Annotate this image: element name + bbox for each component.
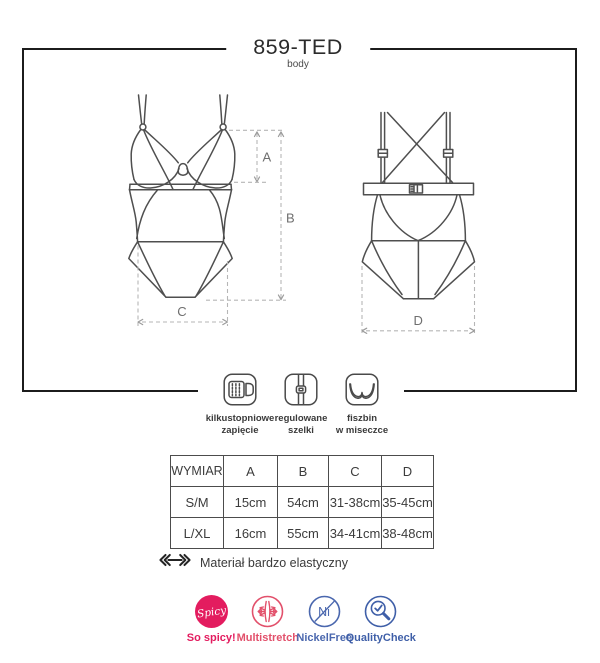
stretch-arrows-icon xyxy=(157,552,193,573)
badge-label: QualityCheck xyxy=(346,632,416,644)
back-view-drawing xyxy=(362,113,474,299)
svg-text:Ni: Ni xyxy=(318,605,330,619)
badges-row: Spicy So spicy! xyxy=(183,595,409,644)
value-cell: 31-38cm xyxy=(329,487,382,518)
feature-label-line1: fiszbin xyxy=(336,413,388,425)
value-cell: 38-48cm xyxy=(382,518,434,549)
col-header-a: A xyxy=(224,456,278,487)
feature-label-line1: kilkustopniowe xyxy=(206,413,275,425)
badge-quality-check: QualityCheck xyxy=(353,595,410,644)
table-row: L/XL 16cm 55cm 34-41cm 38-48cm xyxy=(171,518,434,549)
feature-label-line2: w miseczce xyxy=(336,425,388,437)
badge-so-spicy: Spicy So spicy! xyxy=(183,595,240,644)
underwire-cup-icon xyxy=(345,373,379,406)
dimension-label-a: A xyxy=(263,150,272,165)
front-dimension-lines: A B C xyxy=(138,130,295,326)
badge-label: NickelFree xyxy=(296,632,352,644)
table-row: S/M 15cm 54cm 31-38cm 35-45cm xyxy=(171,487,434,518)
front-view-drawing xyxy=(129,95,235,297)
dimension-label-b: B xyxy=(286,211,295,226)
feature-label-line2: zapięcie xyxy=(206,425,275,437)
so-spicy-icon: Spicy xyxy=(195,595,228,628)
badge-label: So spicy! xyxy=(187,632,236,644)
feature-hook-eye-closure: kilkustopniowe zapięcie xyxy=(212,368,268,436)
feature-underwire-cup: fiszbin w miseczce xyxy=(334,368,390,436)
feature-icons-row: kilkustopniowe zapięcie regulowane xyxy=(198,368,404,436)
col-header-wymiar: WYMIAR xyxy=(171,456,224,487)
size-table-header-row: WYMIAR A B C D xyxy=(171,456,434,487)
size-cell: L/XL xyxy=(171,518,224,549)
col-header-b: B xyxy=(278,456,329,487)
value-cell: 35-45cm xyxy=(382,487,434,518)
nickel-free-icon: Ni xyxy=(308,595,341,628)
badge-label: Multistretch xyxy=(237,632,299,644)
feature-adjustable-straps: regulowane szelki xyxy=(273,368,329,436)
hook-eye-closure-icon xyxy=(223,373,257,406)
value-cell: 34-41cm xyxy=(329,518,382,549)
material-note-text: Materiał bardzo elastyczny xyxy=(200,556,348,570)
value-cell: 16cm xyxy=(224,518,278,549)
size-cell: S/M xyxy=(171,487,224,518)
dimension-label-c: C xyxy=(177,304,186,319)
dimension-label-d: D xyxy=(414,313,423,328)
value-cell: 54cm xyxy=(278,487,329,518)
material-note: Materiał bardzo elastyczny xyxy=(157,552,348,573)
quality-check-icon xyxy=(364,595,397,628)
col-header-c: C xyxy=(329,456,382,487)
adjustable-straps-icon xyxy=(284,373,318,406)
multistretch-icon xyxy=(251,595,284,628)
col-header-d: D xyxy=(382,456,434,487)
product-size-sheet: 859-TED body xyxy=(0,0,600,663)
value-cell: 15cm xyxy=(224,487,278,518)
feature-label-line1: regulowane xyxy=(275,413,328,425)
badge-multistretch: Multistretch xyxy=(240,595,297,644)
value-cell: 55cm xyxy=(278,518,329,549)
feature-label-line2: szelki xyxy=(275,425,328,437)
badge-nickel-free: Ni NickelFree xyxy=(296,595,353,644)
size-table: WYMIAR A B C D S/M 15cm 54cm 31-38cm 35-… xyxy=(170,455,434,549)
